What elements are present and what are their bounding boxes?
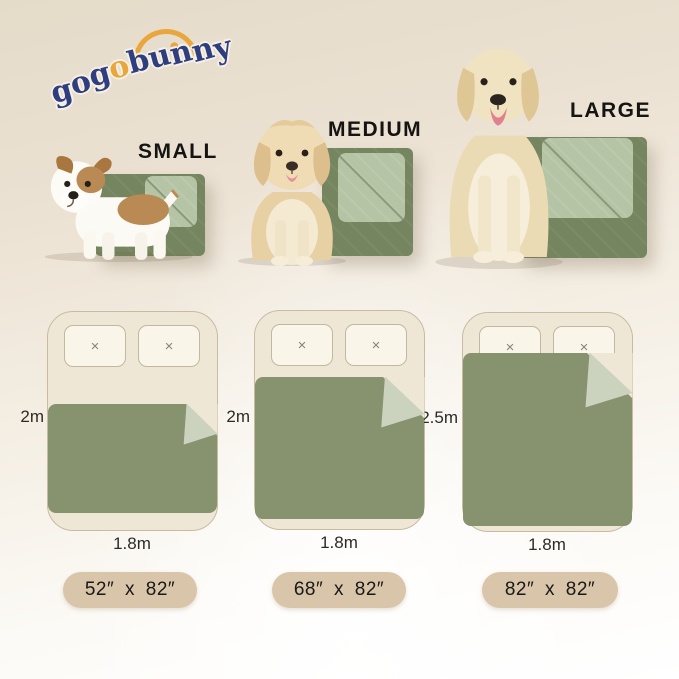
pillow-stitch-icon: × xyxy=(165,339,174,354)
brand-logo: gogobunny xyxy=(42,12,242,155)
pillow: × xyxy=(345,324,407,366)
jack-russell-puppy-photo xyxy=(28,148,203,263)
bed-width-label-small: 1.8m xyxy=(92,534,172,554)
pillow-stitch-icon: × xyxy=(372,338,381,353)
bed-width-label-medium: 1.8m xyxy=(299,533,379,553)
blanket-size-badge-small: 52″ x 82″ xyxy=(63,572,197,608)
blanket-coverage-large xyxy=(463,353,632,526)
havanese-puppy-photo xyxy=(233,108,351,268)
pillow: × xyxy=(138,325,200,367)
bed-diagram-large: × × xyxy=(462,312,633,532)
pillow-stitch-icon: × xyxy=(298,338,307,353)
bed-width-label-large: 1.8m xyxy=(507,535,587,555)
blanket-coverage-medium xyxy=(255,377,424,519)
brand-wordmark: gogobunny xyxy=(48,34,230,110)
bed-diagram-small: × × xyxy=(47,311,218,531)
bed-diagram-medium: × × xyxy=(254,310,425,530)
blanket-coverage-small xyxy=(48,404,217,513)
golden-retriever-photo xyxy=(423,26,575,271)
size-heading-large: LARGE xyxy=(570,99,651,123)
pillow: × xyxy=(64,325,126,367)
product-size-infographic: gogobunny SMALL MEDIUM LARGE xyxy=(0,0,679,679)
pillow-stitch-icon: × xyxy=(91,339,100,354)
pillow: × xyxy=(271,324,333,366)
bed-length-label-small: 2m xyxy=(0,407,44,427)
blanket-size-badge-medium: 68″ x 82″ xyxy=(272,572,406,608)
blanket-size-badge-large: 82″ x 82″ xyxy=(482,572,618,608)
